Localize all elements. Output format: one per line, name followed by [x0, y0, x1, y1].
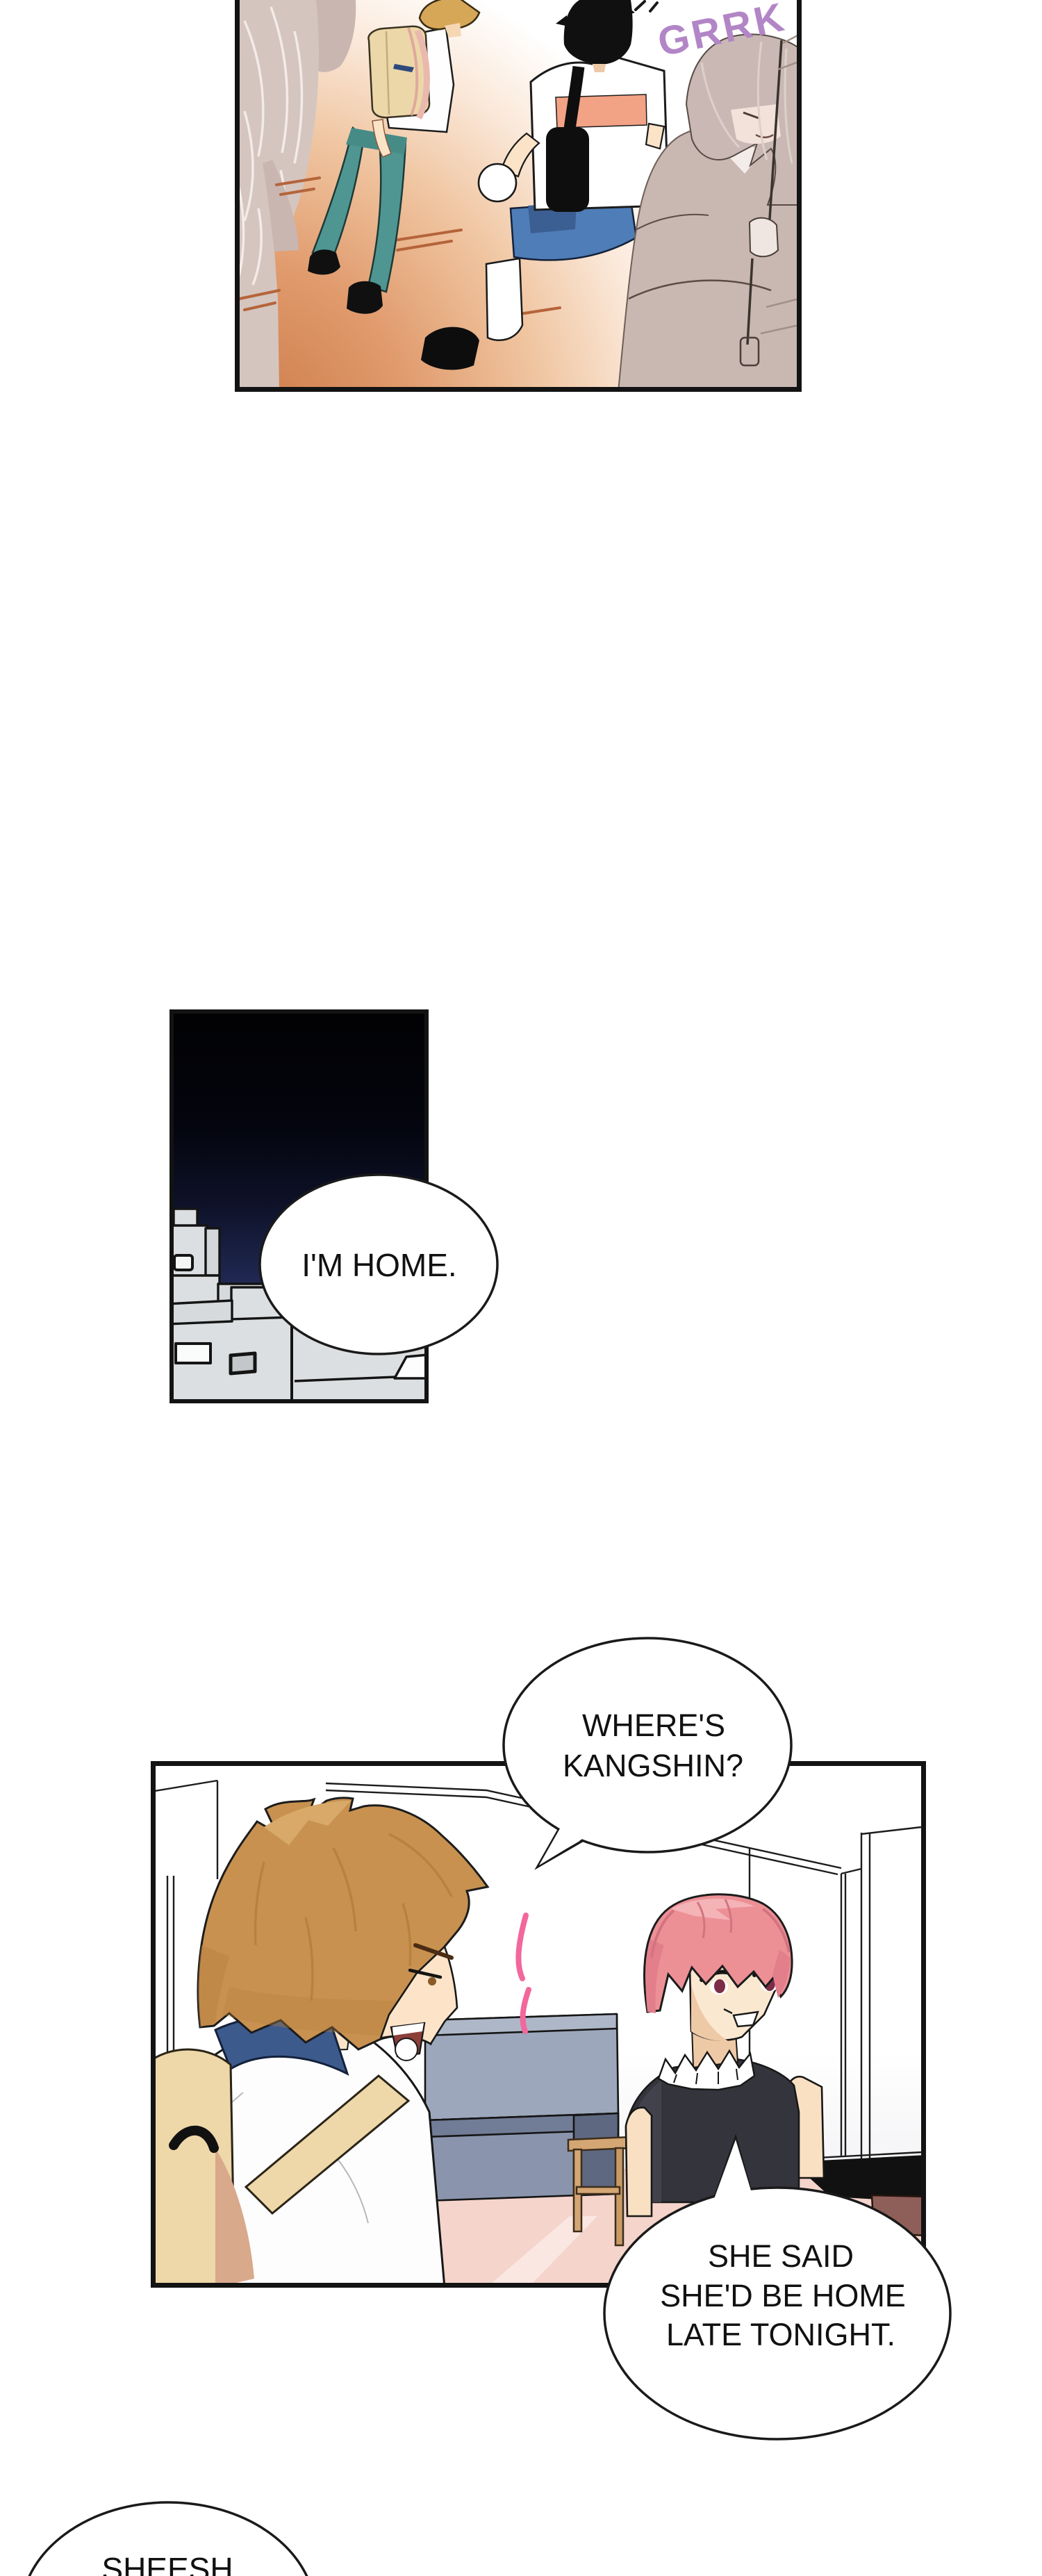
svg-text:WHERE'S: WHERE'S	[582, 1708, 725, 1743]
svg-text:SHEESH: SHEESH	[101, 2551, 233, 2576]
svg-text:KANGSHIN?: KANGSHIN?	[563, 1748, 743, 1783]
svg-text:LATE TONIGHT.: LATE TONIGHT.	[666, 2317, 895, 2352]
svg-text:SHE'D BE HOME: SHE'D BE HOME	[660, 2278, 906, 2313]
svg-text:I'M HOME.: I'M HOME.	[301, 1247, 456, 1283]
svg-text:SHE SAID: SHE SAID	[708, 2238, 854, 2274]
